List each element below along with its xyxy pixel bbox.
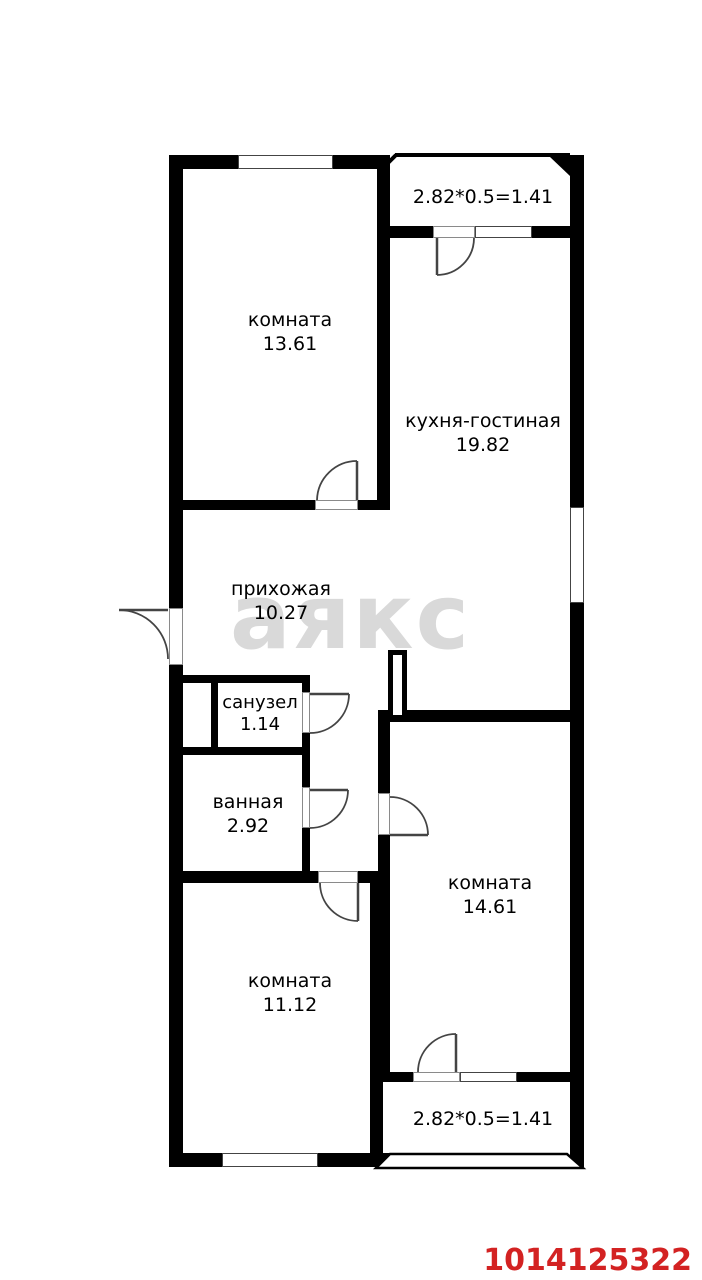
room-label-room13: комната 13.61 (210, 308, 370, 356)
room-area: 13.61 (210, 332, 370, 356)
room-area: 19.82 (395, 433, 571, 457)
plan-lines (0, 0, 702, 1280)
room-area: 10.27 (201, 601, 361, 625)
door-arc-room11 (320, 883, 358, 921)
balcony-bottom-parapet (376, 1154, 583, 1168)
room-area: 2.92 (168, 814, 328, 838)
room-name: ванная (168, 790, 328, 814)
room-name: комната (410, 871, 570, 895)
door-arc-room14-balcony (418, 1034, 456, 1072)
room-area: 11.12 (210, 993, 370, 1017)
room-area: 14.61 (410, 895, 570, 919)
door-arc-entrance (119, 610, 168, 659)
room-name: комната (210, 308, 370, 332)
room-label-bathroom: ванная 2.92 (168, 790, 328, 838)
listing-id: 1014125322 (483, 1243, 692, 1278)
balcony-bottom-dimension: 2.82*0.5=1.41 (398, 1108, 568, 1130)
room-name: комната (210, 969, 370, 993)
room-label-wc: санузел 1.14 (214, 692, 306, 736)
room-label-room11: комната 11.12 (210, 969, 370, 1017)
door-arc-kitchen-balcony (437, 238, 474, 275)
balcony-top-corner-right (550, 157, 570, 176)
room-name: кухня-гостиная (395, 409, 571, 433)
door-arc-wc (310, 694, 349, 733)
room-name: прихожая (201, 577, 361, 601)
door-arc-room13 (317, 461, 357, 500)
room-label-room14: комната 14.61 (410, 871, 570, 919)
floor-plan: аякс (0, 0, 702, 1280)
balcony-top-corner-left (381, 155, 396, 170)
room-label-hallway: прихожая 10.27 (201, 577, 361, 625)
balcony-top-dimension: 2.82*0.5=1.41 (398, 186, 568, 208)
door-arc-room14 (390, 797, 428, 835)
room-area: 1.14 (214, 714, 306, 736)
room-label-kitchen-living: кухня-гостиная 19.82 (395, 409, 571, 457)
room-name: санузел (214, 692, 306, 714)
